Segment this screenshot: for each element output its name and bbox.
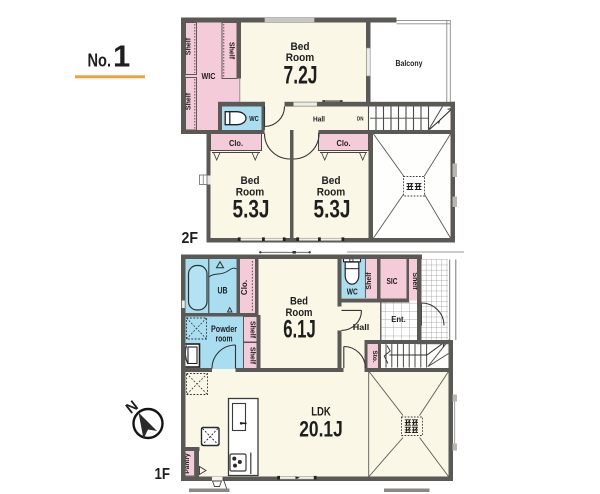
svg-text:Hall: Hall [353,322,370,332]
svg-text:7.2J: 7.2J [284,62,318,90]
svg-text:Bed: Bed [290,296,308,308]
svg-text:Clo.: Clo. [229,139,243,148]
svg-text:Hall: Hall [313,115,325,124]
svg-text:SIC: SIC [387,276,398,286]
svg-text:WC: WC [249,114,259,123]
svg-text:Ent.: Ent. [391,315,406,324]
svg-text:Clo.: Clo. [337,139,351,148]
svg-text:Shelf: Shelf [186,37,193,55]
svg-text:2F: 2F [182,230,199,247]
svg-text:20.1J: 20.1J [299,417,343,442]
svg-text:1F: 1F [155,466,171,483]
svg-text:UB: UB [218,286,228,296]
svg-text:Shelf: Shelf [186,92,193,110]
svg-text:Shelf: Shelf [249,347,256,365]
svg-text:Powder: Powder [211,324,237,334]
svg-text:Sto.: Sto. [371,350,378,362]
svg-text:WIC: WIC [202,71,216,81]
svg-text:6.1J: 6.1J [283,316,316,344]
svg-text:5.3J: 5.3J [233,196,270,224]
svg-text:Clo.: Clo. [240,280,249,295]
svg-text:Shelf: Shelf [366,272,373,290]
svg-text:room: room [216,334,233,344]
svg-text:Balcony: Balcony [396,58,423,68]
svg-text:Shelf: Shelf [228,42,235,60]
svg-text:Shelf: Shelf [411,272,418,290]
svg-text:1: 1 [113,39,130,74]
svg-text:DN: DN [357,116,364,122]
svg-text:Shelf: Shelf [249,321,256,339]
svg-text:Bed: Bed [322,175,341,187]
svg-text:No.: No. [88,50,112,71]
svg-text:5.3J: 5.3J [314,196,351,224]
svg-text:WC: WC [347,287,358,297]
svg-text:Bed: Bed [241,175,260,187]
